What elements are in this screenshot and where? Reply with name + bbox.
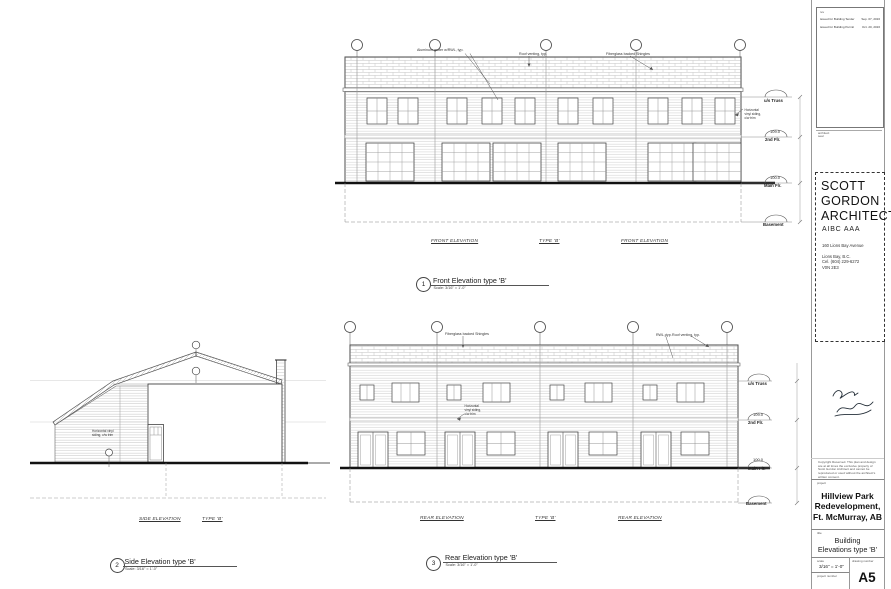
architect-seal-note: architect seal bbox=[818, 132, 832, 139]
architect-name: SCOTT GORDON ARCHITECT bbox=[821, 179, 891, 224]
front-level-main: Main Flr. bbox=[764, 183, 781, 188]
copyright-note: Copyright Reserved. This plan and design… bbox=[818, 461, 878, 480]
front-gutter-note: Aluminum gutter w/RWL, typ. bbox=[417, 48, 463, 52]
front-elevation-drawing bbox=[330, 30, 810, 265]
front-level-basement: Basement bbox=[763, 222, 784, 227]
revision-row: issued for Building Tender Sep. 07, 2016 bbox=[820, 17, 880, 21]
rear-caption-mid: TYPE 'B' bbox=[535, 516, 556, 521]
rear-view-number: 3 bbox=[426, 556, 441, 571]
project-name-line: Hillview Park bbox=[811, 491, 884, 501]
revision-table: rev issued for Building Tender Sep. 07, … bbox=[816, 7, 884, 128]
front-level-second-elev: 109.0 bbox=[770, 129, 780, 134]
front-view-scale: Scale: 3/16" = 1'-0" bbox=[434, 286, 466, 290]
rear-level-main: Main Flr. bbox=[748, 466, 765, 471]
sheet-title-line: Building bbox=[811, 536, 884, 545]
architect-signature bbox=[825, 382, 880, 427]
sheet-number: A5 bbox=[851, 570, 883, 585]
sheet-title-line: Elevations type 'B' bbox=[811, 545, 884, 554]
rear-caption-right: REAR ELEVATION bbox=[618, 516, 662, 521]
rear-shingles-note: Fiberglass backed Shingles bbox=[445, 332, 489, 336]
grid-bubbles bbox=[352, 40, 746, 58]
architect-name-line: GORDON bbox=[821, 194, 891, 209]
revision-header: rev bbox=[820, 10, 824, 14]
rear-level-main-elev: 100.0 bbox=[753, 457, 763, 462]
revision-label: issued for Building Tender bbox=[820, 17, 854, 21]
scale-label: scale bbox=[817, 559, 824, 563]
front-caption-right: FRONT ELEVATION bbox=[621, 239, 668, 244]
rear-siding-note: Horizontal vinyl siding, c/w trim bbox=[465, 404, 485, 416]
front-roof bbox=[345, 57, 741, 88]
architect-address-line: V0N 2E3 bbox=[822, 265, 864, 271]
front-level-second: 2nd Flr. bbox=[765, 137, 780, 142]
side-roof-right bbox=[196, 352, 282, 384]
architect-stamp-box: SCOTT GORDON ARCHITECT AIBC AAA 160 Lion… bbox=[815, 172, 885, 342]
rear-vent-note: Roof venting, typ. bbox=[672, 333, 700, 337]
scale-value: 3/16" = 1'-0" bbox=[819, 564, 844, 569]
side-main-wall bbox=[148, 384, 282, 463]
rear-gutter bbox=[348, 363, 740, 366]
front-vent-note: Roof venting, typ. bbox=[519, 52, 547, 56]
side-view-title: Side Elevation type 'B' bbox=[125, 557, 196, 566]
architect-associations: AIBC AAA bbox=[822, 226, 860, 233]
rear-level-second-elev: 109.0 bbox=[753, 412, 763, 417]
revision-row: issued for Building Permit Oct. 20, 2016 bbox=[820, 25, 880, 29]
rear-view-scale: Scale: 3/16" = 1'-0" bbox=[446, 563, 478, 567]
drawing-number-label: drawing number bbox=[852, 559, 874, 563]
front-caption-mid: TYPE 'B' bbox=[539, 239, 560, 244]
architect-name-line: ARCHITECT bbox=[821, 209, 891, 224]
front-gutter bbox=[343, 88, 743, 92]
front-view-title: Front Elevation type 'B' bbox=[433, 276, 506, 285]
rear-view-title: Rear Elevation type 'B' bbox=[445, 553, 517, 562]
side-garage-wall bbox=[55, 386, 148, 462]
front-view-number: 1 bbox=[416, 277, 431, 292]
side-caption-left: SIDE ELEVATION bbox=[139, 517, 181, 522]
rear-caption-left: REAR ELEVATION bbox=[420, 516, 464, 521]
front-caption-left: FRONT ELEVATION bbox=[431, 239, 478, 244]
architect-name-line: SCOTT bbox=[821, 179, 891, 194]
sheet-title: Building Elevations type 'B' bbox=[811, 536, 884, 555]
project-name-line: Ft. McMurray, AB bbox=[811, 512, 884, 522]
project-name-line: Redevelopment, bbox=[811, 501, 884, 511]
architect-phone: Cel. (604) 229-6272 bbox=[822, 259, 859, 264]
side-caption-mid: TYPE 'B' bbox=[202, 517, 223, 522]
front-shingles-note: Fiberglass backed Shingles bbox=[606, 52, 650, 56]
rear-level-arcs bbox=[748, 374, 770, 503]
project-number-label: project number bbox=[817, 574, 837, 578]
side-siding-note: Horizontal vinyl siding, c/w trim bbox=[92, 429, 114, 437]
project-name: Hillview Park Redevelopment, Ft. McMurra… bbox=[811, 491, 884, 522]
architect-address-line: 160 Lions Bay Avenue bbox=[822, 243, 864, 249]
rear-roof bbox=[350, 345, 738, 363]
rear-level-second: 2nd Flr. bbox=[748, 420, 763, 425]
front-level-main-elev: 100.0 bbox=[770, 175, 780, 180]
revision-date: Oct. 20, 2016 bbox=[862, 25, 880, 29]
front-level-arcs bbox=[765, 90, 787, 222]
front-level-truss: u/s Truss bbox=[764, 98, 783, 103]
drawing-sheet: Aluminum gutter w/RWL, typ. Roof venting… bbox=[0, 0, 891, 589]
side-view-scale: Scale: 3/16" = 1'-0" bbox=[125, 567, 157, 571]
rear-level-basement: Basement bbox=[746, 501, 767, 506]
revision-date: Sep. 07, 2016 bbox=[861, 17, 880, 21]
rear-level-truss: u/s Truss bbox=[748, 381, 767, 386]
side-elevation-drawing bbox=[26, 326, 336, 541]
rear-rwl-note: RWL, typ. bbox=[656, 333, 672, 337]
title-label: title bbox=[817, 531, 822, 535]
front-siding-note: Horizontal vinyl siding, c/w trim bbox=[745, 108, 764, 120]
project-label: project bbox=[817, 481, 826, 485]
rear-elevation-drawing bbox=[335, 316, 805, 516]
architect-address: 160 Lions Bay Avenue Lions Bay, B.C. V0N… bbox=[822, 237, 864, 276]
side-door bbox=[148, 425, 164, 463]
revision-label: issued for Building Permit bbox=[820, 25, 854, 29]
